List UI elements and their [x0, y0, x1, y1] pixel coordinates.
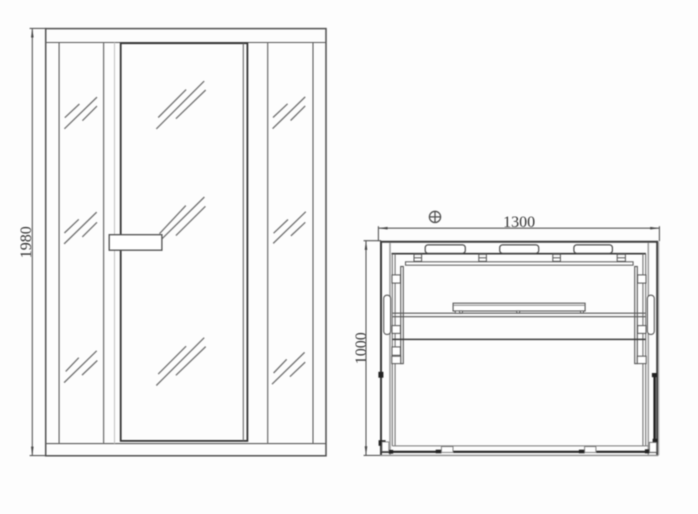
svg-text:1000: 1000 [353, 332, 370, 364]
svg-text:1980: 1980 [18, 226, 35, 258]
